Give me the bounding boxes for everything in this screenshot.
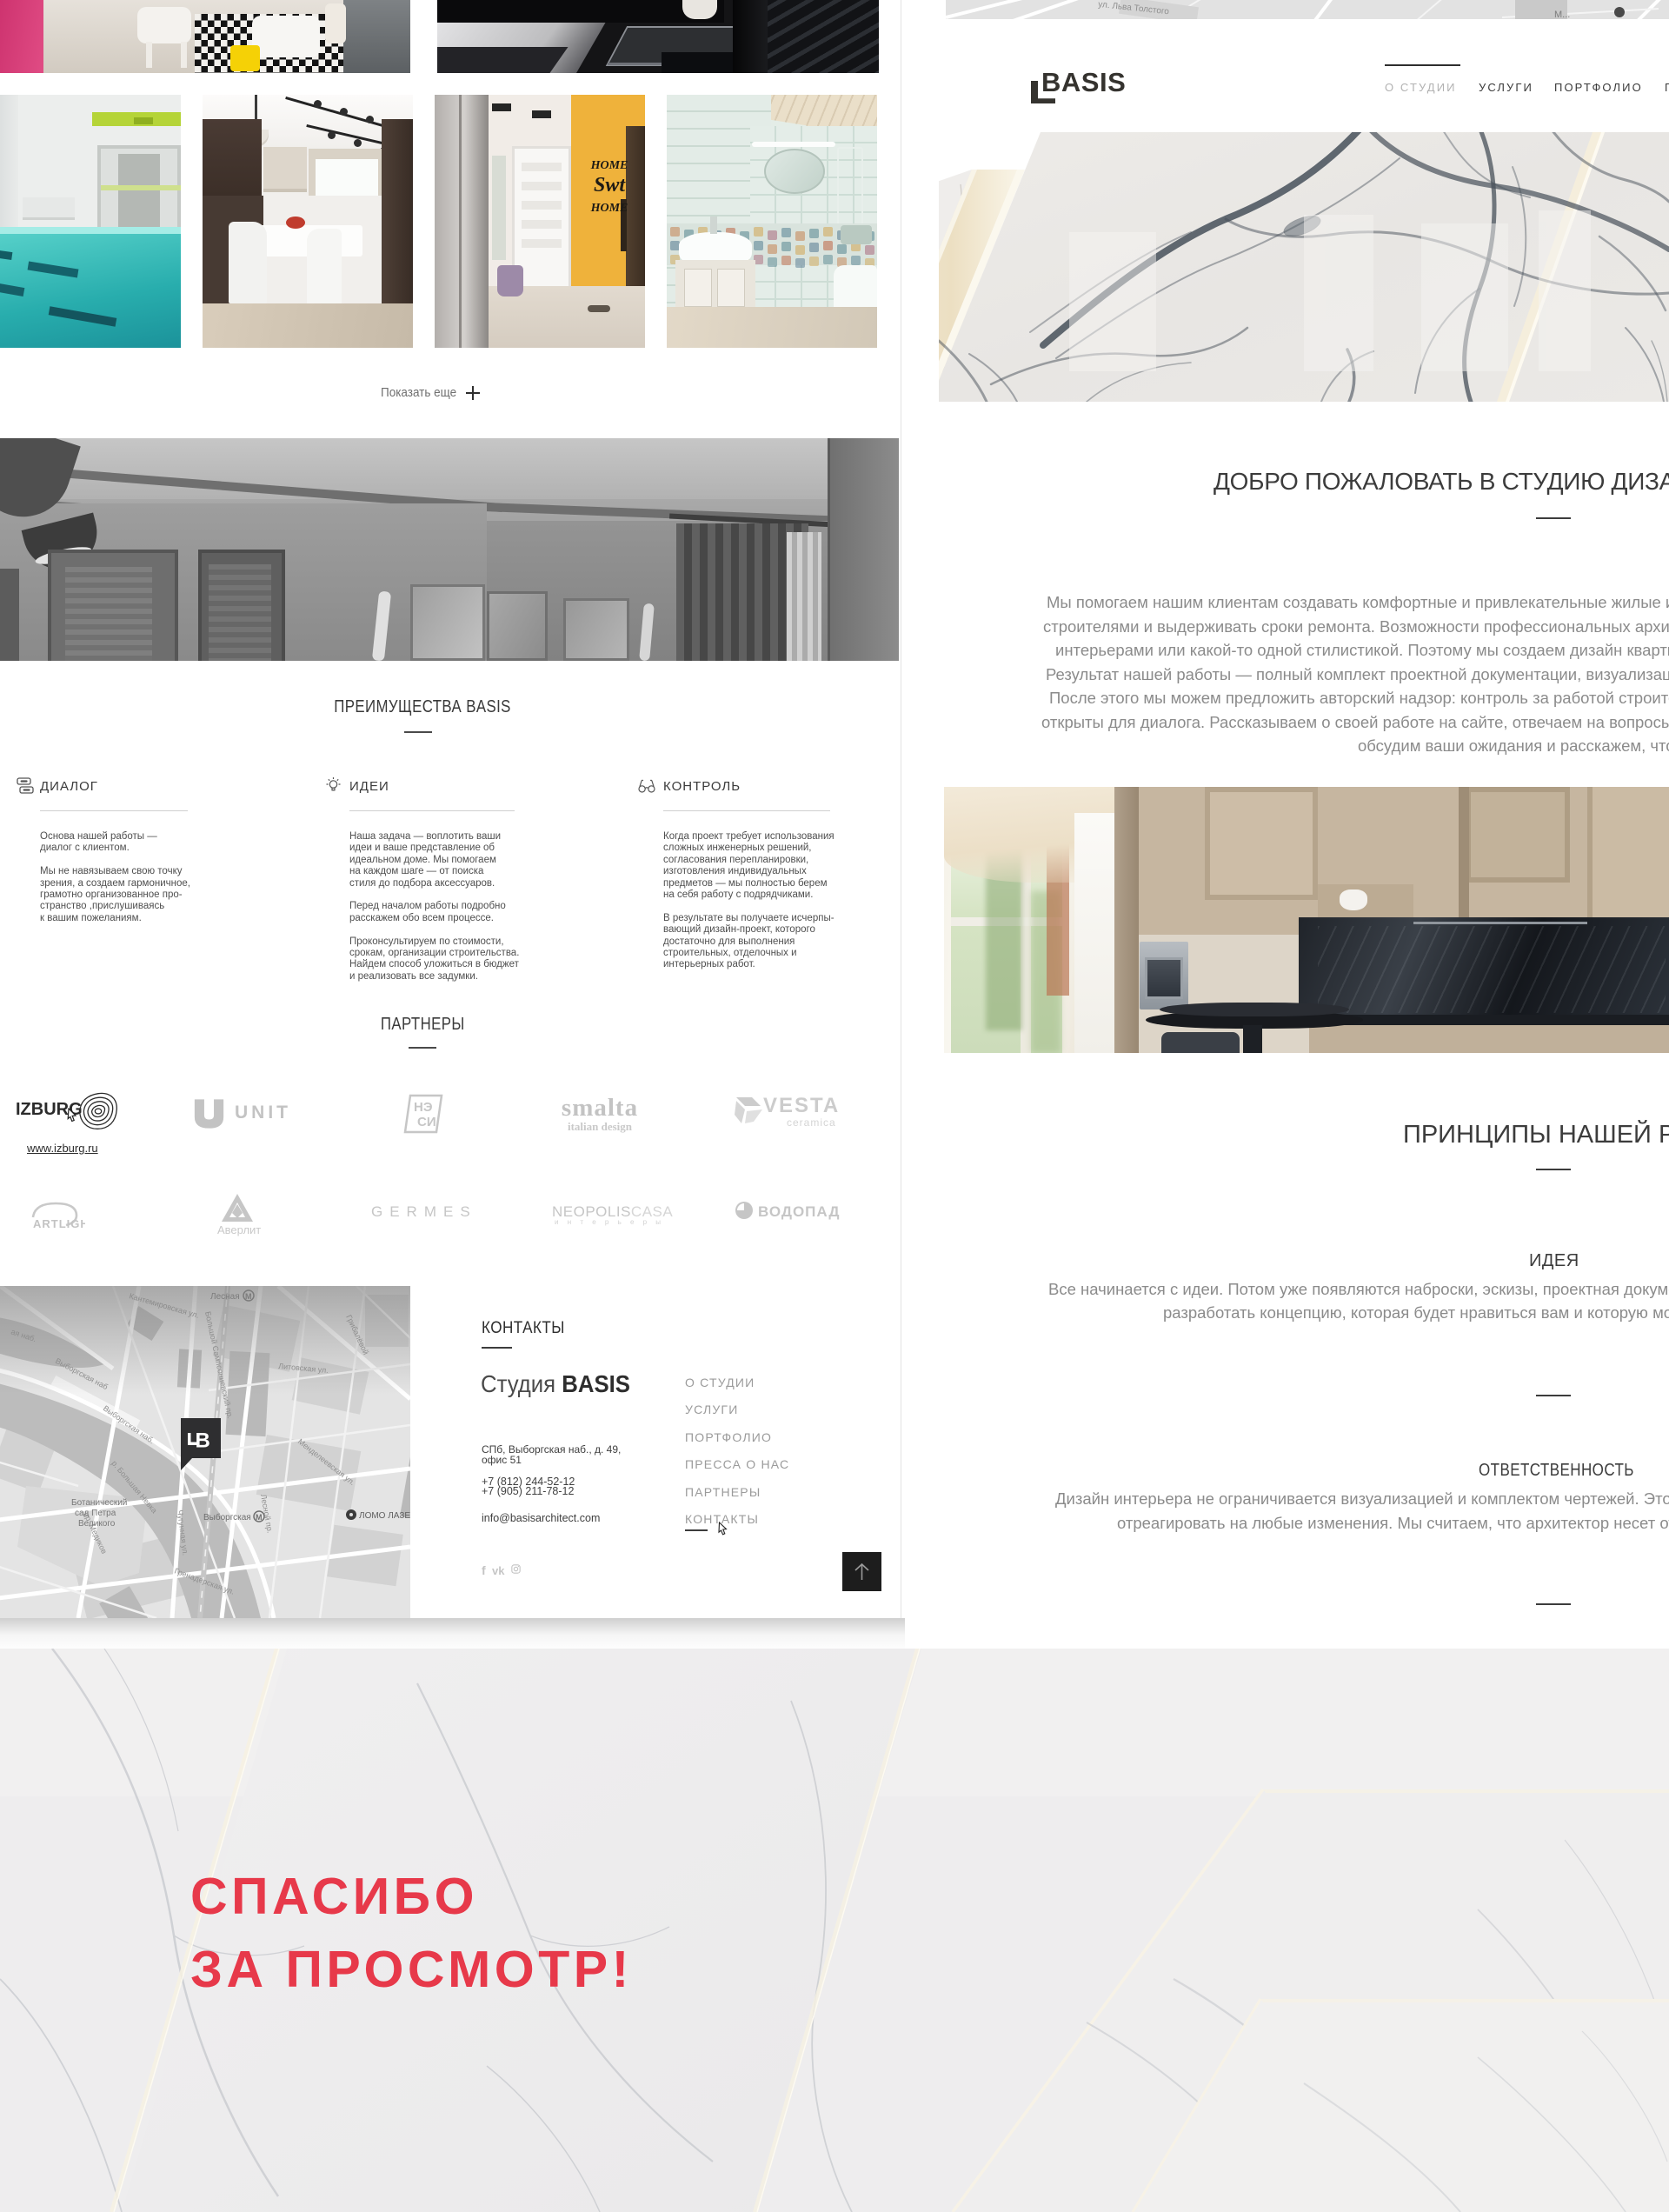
- svg-text:Ботанический: Ботанический: [71, 1498, 127, 1508]
- svg-text:Великого: Великого: [78, 1519, 116, 1529]
- svg-text:Выборгская: Выборгская: [203, 1512, 251, 1522]
- svg-text:М...: М...: [1554, 10, 1570, 19]
- svg-text:НЭ: НЭ: [414, 1100, 433, 1115]
- svg-text:СИ: СИ: [417, 1115, 436, 1129]
- svg-text:М: М: [256, 1513, 263, 1522]
- svg-text:ЛОМО ЛАЗЕР: ЛОМО ЛАЗЕР: [359, 1511, 410, 1521]
- svg-text:ARTLIGHT: ARTLIGHT: [33, 1217, 85, 1230]
- svg-text:сад Петра: сад Петра: [75, 1509, 116, 1518]
- svg-text:B: B: [196, 1429, 210, 1453]
